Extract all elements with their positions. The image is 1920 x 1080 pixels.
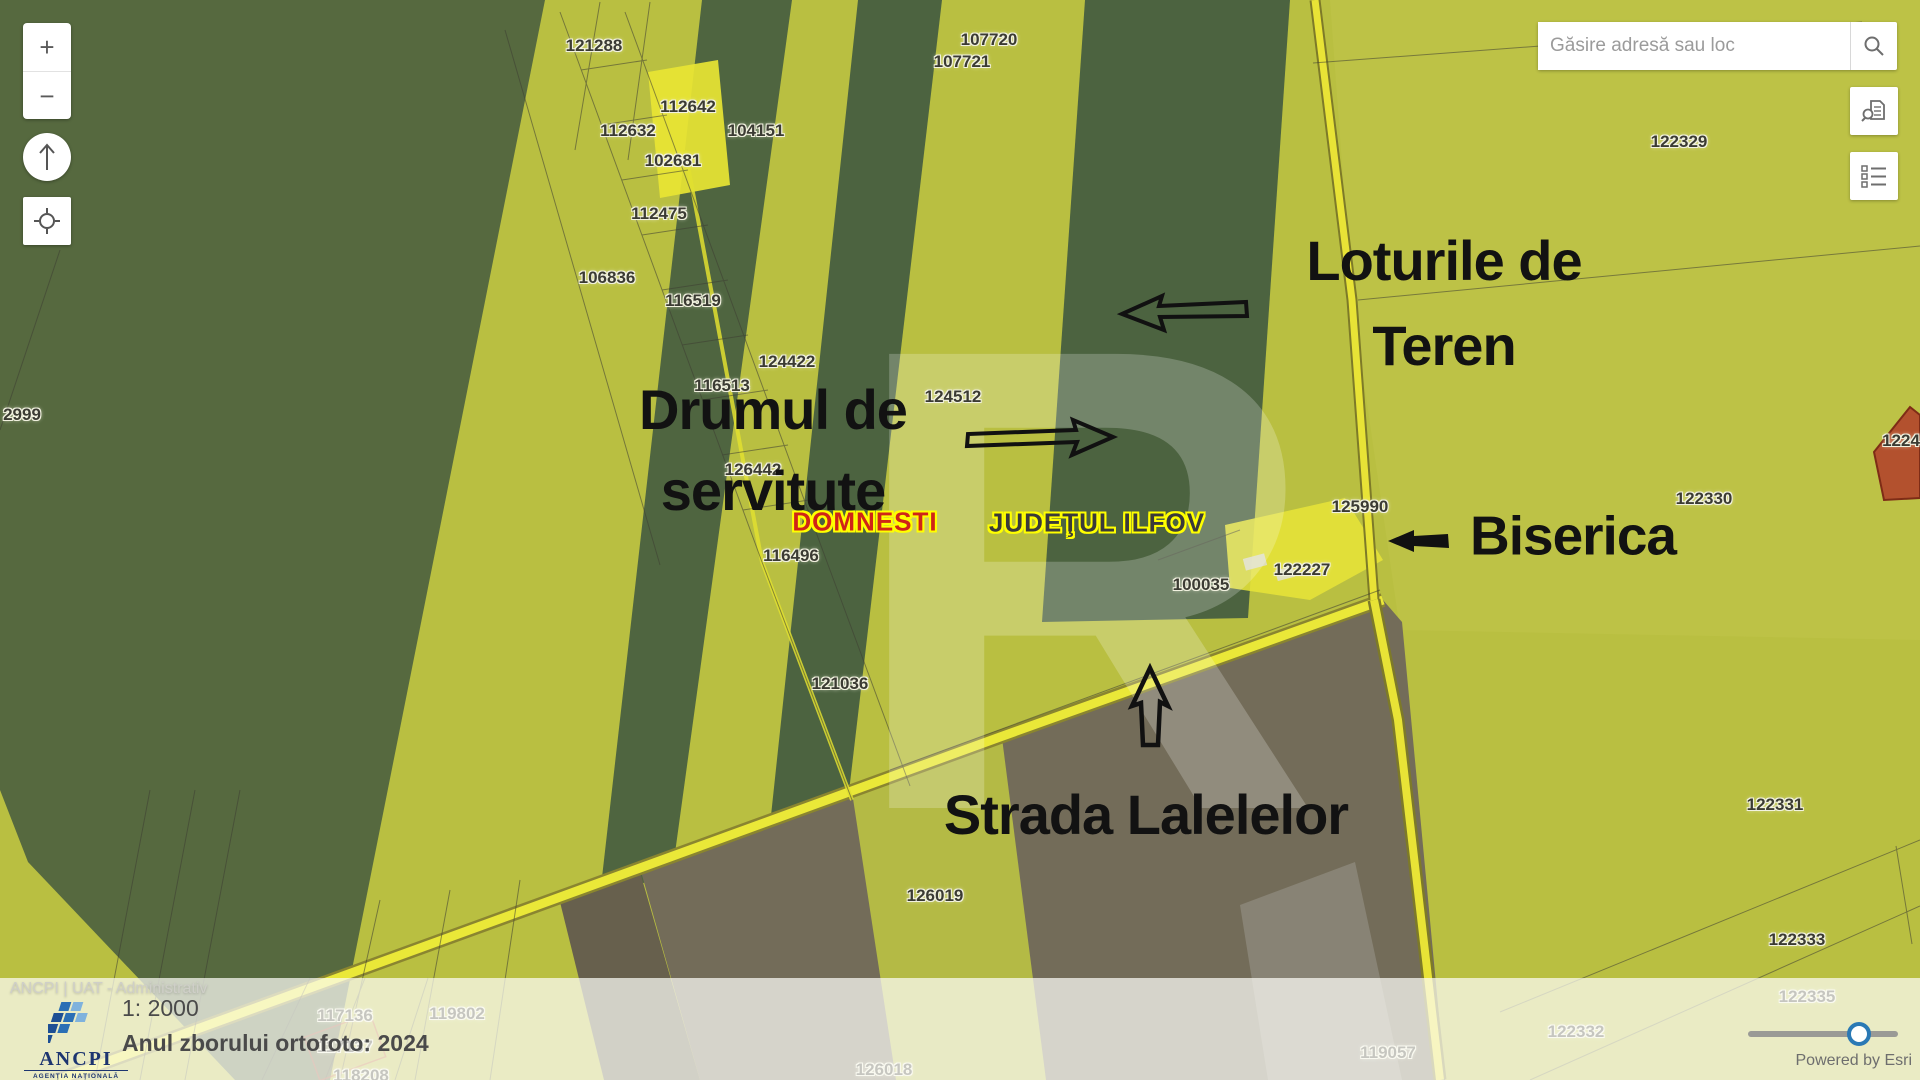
locate-icon	[34, 208, 60, 234]
ancpi-logo-mosaic	[48, 1000, 104, 1044]
layer-opacity-slider[interactable]	[1748, 1031, 1898, 1037]
ortho-year-text: Anul zborului ortofoto: 2024	[122, 1030, 429, 1057]
doc-search-icon	[1861, 98, 1887, 124]
map-info-panel: 1: 2000 Anul zborului ortofoto: 2024	[122, 995, 429, 1057]
zoom-in-button[interactable]: +	[23, 23, 71, 72]
search-icon	[1863, 35, 1885, 57]
slider-handle[interactable]	[1847, 1022, 1871, 1046]
north-arrow-icon	[36, 142, 58, 172]
ancpi-logo-name: ANCPI	[16, 1049, 136, 1069]
ancpi-sub-line-1: AGENŢIA NAŢIONALĂ	[16, 1073, 136, 1080]
identify-results-button[interactable]	[1850, 87, 1898, 135]
zoom-out-button[interactable]: −	[23, 72, 71, 120]
legend-icon	[1861, 164, 1887, 188]
scale-text: 1: 2000	[122, 995, 429, 1022]
map-viewer-app: R 12128810772010772111264211263210415110…	[0, 0, 1920, 1080]
zoom-control: + −	[23, 23, 71, 119]
search-input[interactable]	[1538, 22, 1850, 70]
compass-north-button[interactable]	[23, 133, 71, 181]
powered-by-esri: Powered by Esri	[1796, 1052, 1913, 1070]
legend-button[interactable]	[1850, 152, 1898, 200]
ancpi-logo: ANCPI AGENŢIA NAŢIONALĂ DE CADASTRU ŞI P…	[16, 1000, 136, 1080]
locate-me-button[interactable]	[23, 197, 71, 245]
search-box	[1538, 22, 1897, 70]
map-canvas[interactable]	[0, 0, 1920, 1080]
search-button[interactable]	[1850, 22, 1897, 70]
